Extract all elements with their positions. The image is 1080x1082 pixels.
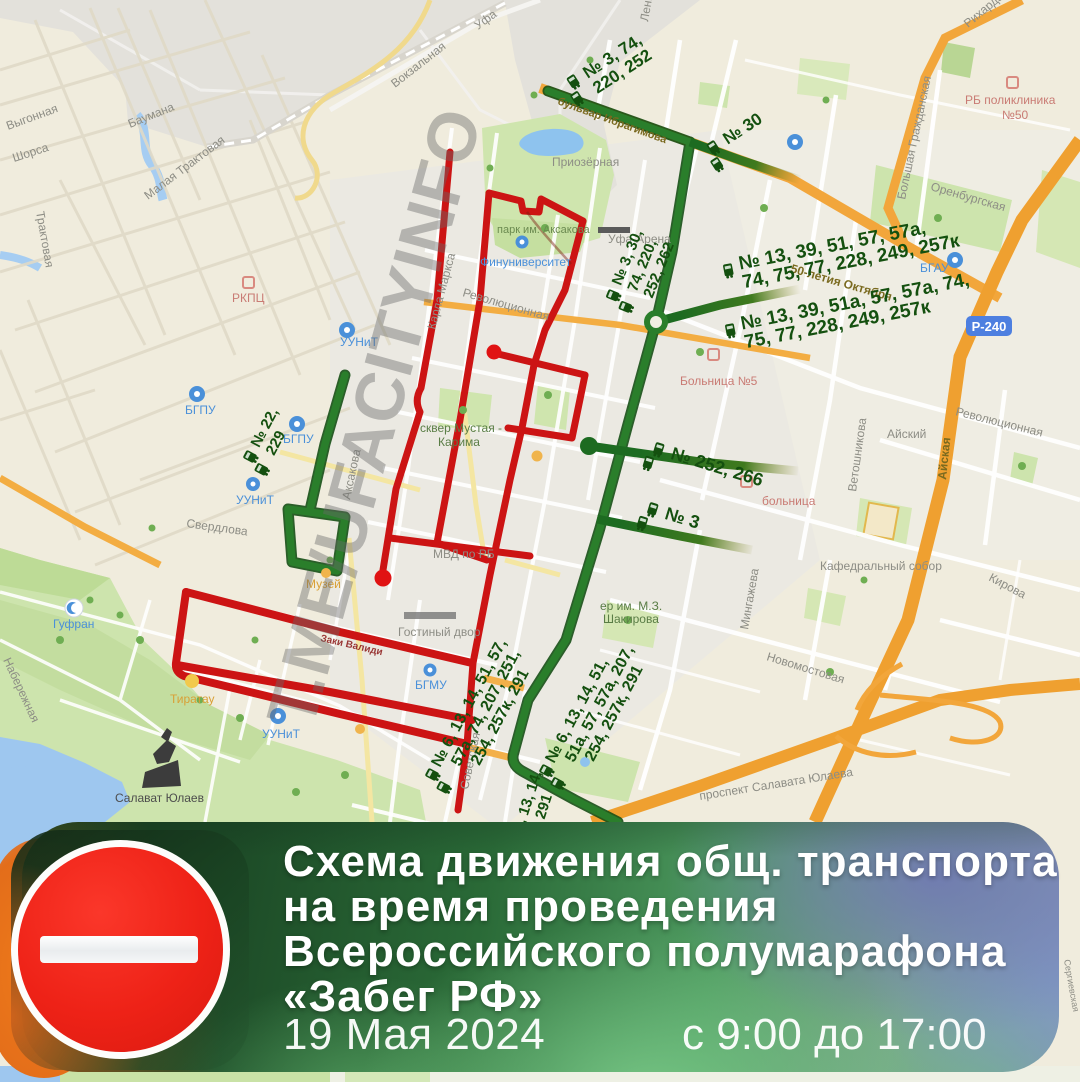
- svg-text:БГАУ: БГАУ: [920, 261, 949, 275]
- svg-text:Салават Юлаев: Салават Юлаев: [115, 791, 204, 805]
- svg-text:парк им. Аксакова: парк им. Аксакова: [497, 224, 591, 236]
- svg-text:УУНиТ: УУНиТ: [236, 493, 275, 507]
- svg-text:МВД по РБ: МВД по РБ: [433, 547, 495, 561]
- svg-text:Шакирова: Шакирова: [603, 612, 659, 626]
- svg-text:Больница №5: Больница №5: [680, 374, 758, 388]
- svg-text:Приозёрная: Приозёрная: [552, 155, 619, 169]
- svg-text:Кафедральный собор: Кафедральный собор: [820, 559, 942, 573]
- svg-text:ер им. М.З.: ер им. М.З.: [600, 599, 662, 613]
- svg-text:РКПЦ: РКПЦ: [232, 291, 265, 305]
- svg-text:БГПУ: БГПУ: [283, 432, 314, 446]
- svg-text:Карима: Карима: [438, 435, 480, 449]
- svg-text:Р-240: Р-240: [972, 319, 1007, 334]
- svg-text:Тиратау: Тиратау: [170, 692, 215, 706]
- svg-text:РБ поликлиника: РБ поликлиника: [965, 93, 1056, 107]
- svg-text:БГПУ: БГПУ: [185, 403, 216, 417]
- svg-text:УУНиТ: УУНиТ: [262, 727, 301, 741]
- svg-text:Айский: Айский: [887, 427, 926, 441]
- svg-text:больница: больница: [762, 494, 816, 508]
- svg-text:Гуфран: Гуфран: [53, 617, 94, 631]
- svg-text:БГМУ: БГМУ: [415, 678, 447, 692]
- svg-text:Гостиный двор: Гостиный двор: [398, 625, 481, 639]
- svg-text:сквер Мустая -: сквер Мустая -: [420, 421, 502, 435]
- svg-text:Финуниверситет: Финуниверситет: [480, 255, 572, 269]
- svg-text:№50: №50: [1002, 108, 1029, 122]
